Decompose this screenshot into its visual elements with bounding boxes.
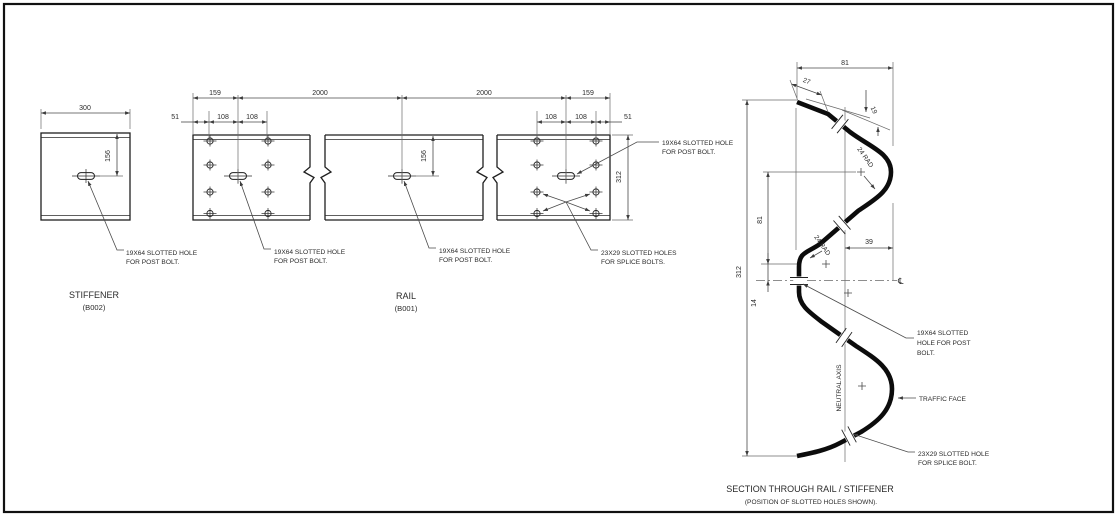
guardrail-drawing: 300 156 19X64 SLOTTED HOLE FOR POST BOLT… [0, 0, 1117, 516]
section-subtitle: (POSITION OF SLOTTED HOLES SHOWN). [745, 499, 877, 506]
rail-note-post-mid2: FOR POST BOLT. [439, 257, 492, 264]
drawing-sheet: 300 156 19X64 SLOTTED HOLE FOR POST BOLT… [0, 0, 1117, 516]
section-width-dim: 81 [841, 60, 849, 67]
section-splice-note2: FOR SPLICE BOLT. [918, 460, 977, 467]
section-valley-axis-dim: 14 [751, 299, 758, 307]
rail-part-no: (B001) [395, 304, 418, 313]
rail-dim-edge-right: 51 [624, 114, 632, 121]
section-splice-note1: 23X29 SLOTTED HOLE [918, 451, 990, 458]
rail-slot-offset-dim: 156 [421, 150, 428, 162]
rail-dim-span2: 2000 [476, 90, 492, 97]
rail-note-post-right1: 19X64 SLOTTED HOLE [662, 140, 734, 147]
rail-dim-span1: 2000 [312, 90, 328, 97]
rail-note-splice1: 23X29 SLOTTED HOLES [601, 250, 677, 257]
section-post-note2: HOLE FOR POST [917, 340, 971, 347]
stiffener-slot-offset-dim: 156 [105, 150, 112, 162]
neutral-axis-label: NEUTRAL AXIS [836, 364, 843, 412]
rail-note-post-left1: 19X64 SLOTTED HOLE [274, 249, 346, 256]
traffic-face-label: TRAFFIC FACE [919, 396, 966, 403]
drawing-border [4, 4, 1113, 512]
rail-note-splice2: FOR SPLICE BOLTS. [601, 259, 665, 266]
rail-dim-end-left: 159 [209, 90, 221, 97]
rail-dim-hole-right2: 108 [575, 114, 587, 121]
rail-title: RAIL [396, 291, 416, 301]
rail-note-post-mid1: 19X64 SLOTTED HOLE [439, 248, 511, 255]
stiffener-note-line2: FOR POST BOLT. [126, 259, 179, 266]
stiffener-title: STIFFENER [69, 290, 120, 300]
rail-height-dim: 312 [616, 171, 623, 183]
section-height-dim: 312 [736, 266, 743, 278]
rail-note-post-left2: FOR POST BOLT. [274, 258, 327, 265]
rail-dim-end-right: 159 [582, 90, 594, 97]
rail-dim-edge-left: 51 [171, 114, 179, 121]
section-post-note1: 19X64 SLOTTED [917, 330, 969, 337]
section-title: SECTION THROUGH RAIL / STIFFENER [726, 484, 894, 494]
centreline-symbol: ℄ [897, 277, 904, 287]
section-post-note3: BOLT. [917, 350, 935, 357]
section-axis-offset-dim: 39 [865, 239, 873, 246]
rail-dim-hole-right1: 108 [545, 114, 557, 121]
section-crest-valley-dim: 81 [757, 216, 764, 224]
stiffener-part-no: (B002) [83, 303, 106, 312]
rail-dim-hole-left1: 108 [217, 114, 229, 121]
rail-note-post-right2: FOR POST BOLT. [662, 149, 715, 156]
stiffener-width-dim: 300 [79, 105, 91, 112]
stiffener-note-line1: 19X64 SLOTTED HOLE [126, 250, 198, 257]
rail-dim-hole-left2: 108 [246, 114, 258, 121]
